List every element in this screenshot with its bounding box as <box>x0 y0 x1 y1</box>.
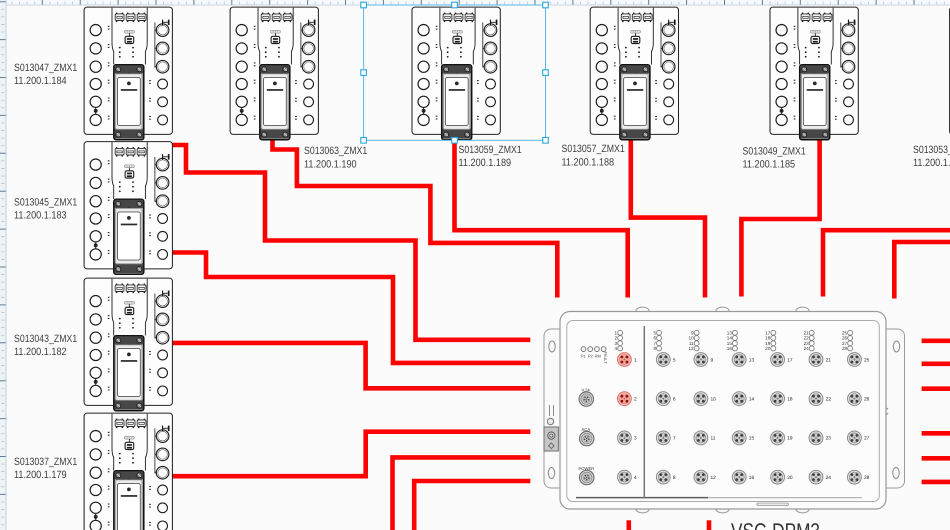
svg-text:S013057_ZMX1: S013057_ZMX1 <box>562 143 625 155</box>
svg-text:25: 25 <box>864 357 870 363</box>
svg-text:21: 21 <box>826 357 832 363</box>
svg-text:16: 16 <box>727 346 733 351</box>
svg-text:P1: P1 <box>581 354 587 359</box>
svg-text:S013045_ZMX1: S013045_ZMX1 <box>14 196 77 208</box>
svg-text:S013053_ZMX1: S013053_ZMX1 <box>913 144 950 156</box>
svg-text:S013037_ZMX1: S013037_ZMX1 <box>14 456 77 468</box>
svg-text:22: 22 <box>826 397 832 403</box>
svg-text:18: 18 <box>787 397 793 403</box>
svg-text:S013047_ZMX1: S013047_ZMX1 <box>14 62 77 74</box>
svg-text:S013049_ZMX1: S013049_ZMX1 <box>743 145 806 157</box>
svg-text:16: 16 <box>749 475 755 481</box>
svg-text:20: 20 <box>787 475 793 481</box>
svg-text:5: 5 <box>673 357 676 363</box>
svg-text:23: 23 <box>826 436 832 442</box>
svg-text:27: 27 <box>864 436 870 442</box>
svg-text:S013059_ZMX1: S013059_ZMX1 <box>459 144 522 156</box>
svg-text:RM: RM <box>595 354 601 359</box>
svg-text:24: 24 <box>826 475 832 481</box>
svg-text:11.200.1.189: 11.200.1.189 <box>459 157 512 169</box>
svg-text:11.200.1.182: 11.200.1.182 <box>14 346 67 358</box>
svg-text:11.200.1.190: 11.200.1.190 <box>304 159 357 171</box>
svg-text:26: 26 <box>864 397 870 403</box>
svg-text:19: 19 <box>787 436 793 442</box>
svg-text:7: 7 <box>673 436 676 442</box>
svg-text:24: 24 <box>804 346 810 351</box>
svg-text:15: 15 <box>749 436 755 442</box>
svg-text:10: 10 <box>711 397 717 403</box>
svg-text:11.200.1.188: 11.200.1.188 <box>562 156 615 168</box>
svg-text:FAULT: FAULT <box>603 352 608 365</box>
svg-text:14: 14 <box>749 397 755 403</box>
svg-text:4: 4 <box>615 346 618 351</box>
svg-text:8: 8 <box>653 346 656 351</box>
svg-text:P2: P2 <box>588 354 594 359</box>
svg-text:9: 9 <box>711 357 714 363</box>
svg-text:12: 12 <box>711 475 717 481</box>
svg-text:12: 12 <box>688 346 694 351</box>
svg-text:VSC-DPM3: VSC-DPM3 <box>731 518 820 530</box>
svg-text:11.200.1.179: 11.200.1.179 <box>14 469 67 481</box>
svg-text:11.200.1.185: 11.200.1.185 <box>743 159 796 171</box>
svg-text:3: 3 <box>634 436 637 442</box>
svg-text:20: 20 <box>765 346 771 351</box>
svg-text:11.200.1.184: 11.200.1.184 <box>14 75 67 87</box>
svg-text:S013063_ZMX1: S013063_ZMX1 <box>304 145 367 157</box>
svg-text:28: 28 <box>864 475 870 481</box>
svg-text:8: 8 <box>673 475 676 481</box>
svg-text:11.200.1.183: 11.200.1.183 <box>14 210 67 222</box>
svg-text:13: 13 <box>749 357 755 363</box>
svg-text:6: 6 <box>673 397 676 403</box>
svg-text:1: 1 <box>634 357 637 363</box>
svg-text:11: 11 <box>711 436 716 442</box>
svg-text:11.200.1.186: 11.200.1.186 <box>913 157 950 169</box>
svg-text:S013043_ZMX1: S013043_ZMX1 <box>14 333 77 345</box>
svg-text:4: 4 <box>634 475 637 481</box>
svg-text:28: 28 <box>842 346 848 351</box>
svg-text:17: 17 <box>787 357 793 363</box>
svg-text:2: 2 <box>634 397 637 403</box>
